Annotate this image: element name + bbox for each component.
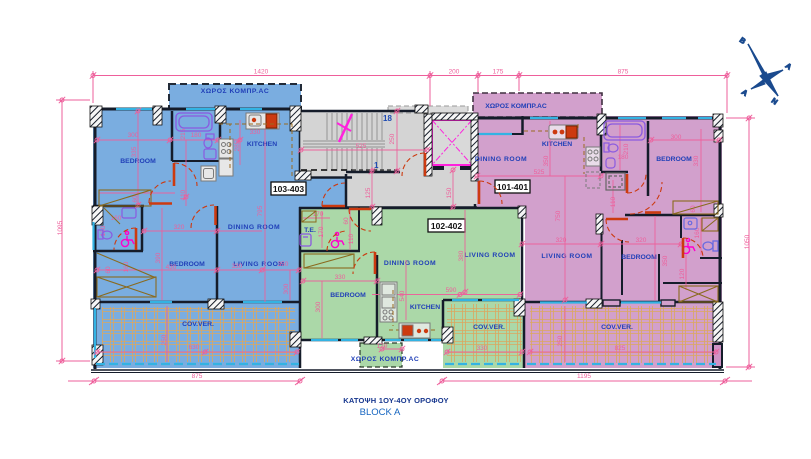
svg-text:T.E.: T.E. xyxy=(304,227,316,234)
svg-text:525: 525 xyxy=(534,169,545,176)
svg-text:KITCHEN: KITCHEN xyxy=(247,141,277,148)
svg-text:1095: 1095 xyxy=(57,220,64,235)
svg-text:180: 180 xyxy=(191,132,202,139)
svg-text:1195: 1195 xyxy=(577,373,591,380)
svg-text:300: 300 xyxy=(283,283,290,294)
svg-text:110: 110 xyxy=(180,189,187,200)
svg-text:BLOCK A: BLOCK A xyxy=(360,407,401,418)
svg-text:320: 320 xyxy=(556,237,567,244)
svg-text:170: 170 xyxy=(318,226,325,237)
svg-text:795: 795 xyxy=(257,205,264,216)
svg-text:330: 330 xyxy=(250,129,261,136)
svg-text:BEDROOM: BEDROOM xyxy=(330,292,366,299)
svg-text:215: 215 xyxy=(180,128,187,139)
svg-text:330: 330 xyxy=(693,155,700,166)
svg-text:250: 250 xyxy=(161,334,168,345)
svg-text:102-402: 102-402 xyxy=(431,221,462,231)
svg-text:60: 60 xyxy=(105,266,112,274)
svg-text:LIVING ROOM: LIVING ROOM xyxy=(541,253,592,260)
svg-text:BEDROOM: BEDROOM xyxy=(621,254,657,261)
svg-text:210: 210 xyxy=(623,143,630,154)
svg-text:110: 110 xyxy=(610,196,617,207)
svg-text:ΧΩΡΟΣ ΚΟΜΠΡ.AC: ΧΩΡΟΣ ΚΟΜΠΡ.AC xyxy=(201,88,270,95)
svg-text:320: 320 xyxy=(636,237,647,244)
svg-text:KITCHEN: KITCHEN xyxy=(542,141,572,148)
svg-text:ΧΩΡΟΣ ΚΟΜΠΡ.AC: ΧΩΡΟΣ ΚΟΜΠΡ.AC xyxy=(485,103,547,110)
svg-text:COV.VER.: COV.VER. xyxy=(473,324,505,331)
svg-text:KITCHEN: KITCHEN xyxy=(410,304,440,311)
svg-text:380: 380 xyxy=(458,250,465,261)
svg-text:ΚΑΤΟΨΗ 1ΟΥ-4ΟΥ ΟΡΟΦΟΥ: ΚΑΤΟΨΗ 1ΟΥ-4ΟΥ ΟΡΟΦΟΥ xyxy=(343,396,448,405)
svg-text:120: 120 xyxy=(679,268,686,279)
svg-text:175: 175 xyxy=(493,69,504,76)
svg-text:1420: 1420 xyxy=(254,69,269,76)
svg-text:103-403: 103-403 xyxy=(273,184,304,194)
svg-text:430: 430 xyxy=(166,264,177,271)
svg-text:DINING ROOM: DINING ROOM xyxy=(228,224,280,231)
svg-text:LIVING ROOM: LIVING ROOM xyxy=(464,252,515,259)
svg-text:180: 180 xyxy=(618,154,629,161)
svg-text:300: 300 xyxy=(315,301,322,312)
svg-text:200: 200 xyxy=(449,69,460,76)
svg-text:COV.VER.: COV.VER. xyxy=(182,321,214,328)
svg-text:590: 590 xyxy=(446,287,457,294)
svg-text:170: 170 xyxy=(377,343,388,350)
svg-text:60: 60 xyxy=(132,195,139,203)
svg-text:330: 330 xyxy=(232,263,243,270)
svg-text:125: 125 xyxy=(365,187,372,198)
svg-text:750: 750 xyxy=(555,210,562,221)
svg-text:300: 300 xyxy=(128,132,139,139)
svg-text:350: 350 xyxy=(278,261,289,268)
svg-text:COV.VER.: COV.VER. xyxy=(601,324,633,331)
svg-text:250: 250 xyxy=(557,335,564,346)
svg-text:285: 285 xyxy=(234,140,241,151)
svg-text:110: 110 xyxy=(348,233,355,244)
svg-text:320: 320 xyxy=(174,224,185,231)
svg-text:350: 350 xyxy=(543,155,550,166)
svg-text:60: 60 xyxy=(343,217,350,225)
svg-text:335: 335 xyxy=(131,146,138,157)
svg-text:630: 630 xyxy=(189,344,200,351)
svg-text:825: 825 xyxy=(615,345,626,352)
svg-text:525: 525 xyxy=(356,143,367,150)
svg-text:875: 875 xyxy=(192,373,203,380)
svg-text:18: 18 xyxy=(383,114,392,123)
svg-text:1050: 1050 xyxy=(744,234,751,249)
svg-text:300: 300 xyxy=(671,134,682,141)
svg-text:101-401: 101-401 xyxy=(497,182,528,192)
svg-text:BEDROOM: BEDROOM xyxy=(656,156,692,163)
svg-text:390: 390 xyxy=(155,252,162,263)
svg-text:DINING ROOM: DINING ROOM xyxy=(384,260,436,267)
svg-text:150: 150 xyxy=(446,187,453,198)
svg-text:330: 330 xyxy=(477,345,488,352)
svg-text:DINING ROOM: DINING ROOM xyxy=(475,156,527,163)
svg-text:ΧΩΡΟΣ ΚΟΜΠΡ.AC: ΧΩΡΟΣ ΚΟΜΠΡ.AC xyxy=(351,356,420,363)
svg-text:350: 350 xyxy=(662,255,669,266)
svg-text:540: 540 xyxy=(399,290,406,301)
svg-text:330: 330 xyxy=(335,274,346,281)
svg-text:875: 875 xyxy=(618,69,629,76)
svg-text:250: 250 xyxy=(389,133,396,144)
